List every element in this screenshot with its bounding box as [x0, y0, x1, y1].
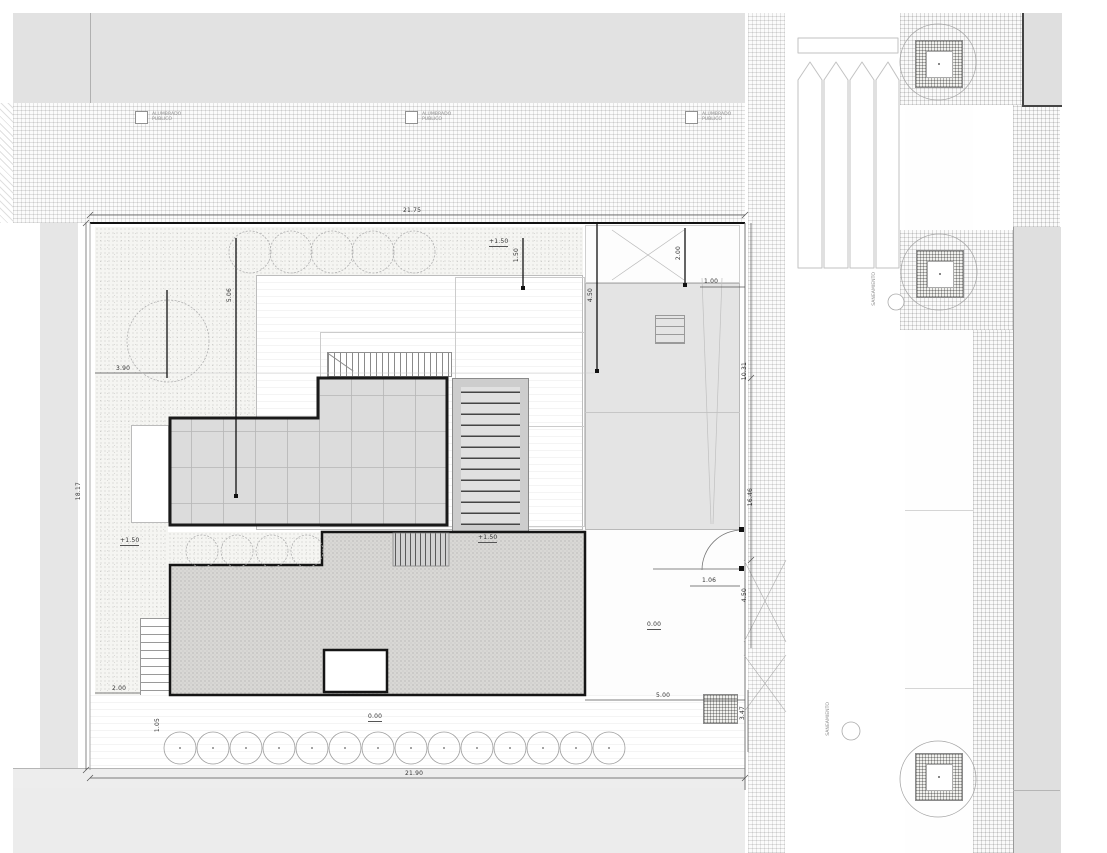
tree-canopy: [900, 24, 976, 100]
tree-canopy: [270, 231, 312, 273]
parking-stall: [876, 62, 899, 268]
dim-setback-b: 1.50: [514, 248, 520, 262]
dim-gate-leaf: 1.06: [702, 578, 716, 584]
drain-slope-mark: [702, 278, 722, 524]
tree-canopy: [900, 741, 976, 817]
tree-canopy: [221, 535, 253, 567]
parking-stall: [824, 62, 848, 268]
manhole: [842, 722, 860, 740]
dim-corner-offset: 1.00: [704, 279, 718, 285]
linework-layer: [0, 0, 1107, 853]
parking-stall: [798, 62, 822, 268]
plaza-tree-canopies: [900, 24, 977, 817]
tree-canopy: [291, 535, 323, 567]
tree-canopy: [186, 535, 218, 567]
manhole: [888, 294, 904, 310]
gate-hinge: [739, 566, 744, 571]
dim-garden-step: 2.00: [112, 686, 126, 692]
site-plan-drawing: ALUMBRADO PUBLICO ALUMBRADO PUBLICO ALUM…: [0, 0, 1107, 853]
tree-canopy: [352, 231, 394, 273]
dim-planter-step: 1.05: [155, 718, 161, 732]
gate-hinge: [739, 527, 744, 532]
dim-site-bottom: 21.90: [405, 771, 423, 777]
parking-stalls: [798, 38, 899, 268]
dim-site-top: 21.75: [403, 208, 421, 214]
dim-court-width: 5.00: [656, 693, 670, 699]
tree-canopy: [127, 300, 209, 382]
sewer-label: SANEAMIENTO: [872, 272, 877, 306]
level-upper: +1.50: [120, 538, 139, 546]
tree-canopy: [393, 231, 435, 273]
dim-site-left: 18.17: [76, 482, 82, 500]
dim-right-lower: 3.47: [740, 706, 746, 720]
dim-yard-depth: 4.50: [588, 288, 594, 302]
tree-canopy: [901, 234, 977, 310]
sewer-label: SANEAMIENTO: [826, 702, 831, 736]
level-upper: +1.50: [489, 239, 508, 247]
terrace-pool: [324, 650, 387, 692]
dim-ramp-width: 2.00: [676, 246, 682, 260]
skylight-roof: [170, 378, 447, 525]
parking-stall: [850, 62, 874, 268]
level-ground: 0.00: [647, 622, 661, 630]
parking-header-bar: [798, 38, 898, 53]
dim-setback-a: 5.06: [227, 288, 233, 302]
level-ground: 0.00: [368, 714, 382, 722]
dim-right-upper: 10.31: [742, 362, 748, 380]
south-tree-centers: [179, 747, 610, 749]
tree-canopy: [256, 535, 288, 567]
gate-swing-arc: [702, 530, 742, 570]
dim-right-middle: 16.46: [748, 488, 754, 506]
south-tree-row: [164, 732, 625, 764]
dim-right-gate: 4.50: [742, 588, 748, 602]
tree-canopy: [229, 231, 271, 273]
terrace-stair-slats: [393, 533, 449, 566]
level-upper: +1.50: [478, 535, 497, 543]
dim-tree-offset: 3.90: [116, 366, 130, 372]
tree-canopy: [311, 231, 353, 273]
